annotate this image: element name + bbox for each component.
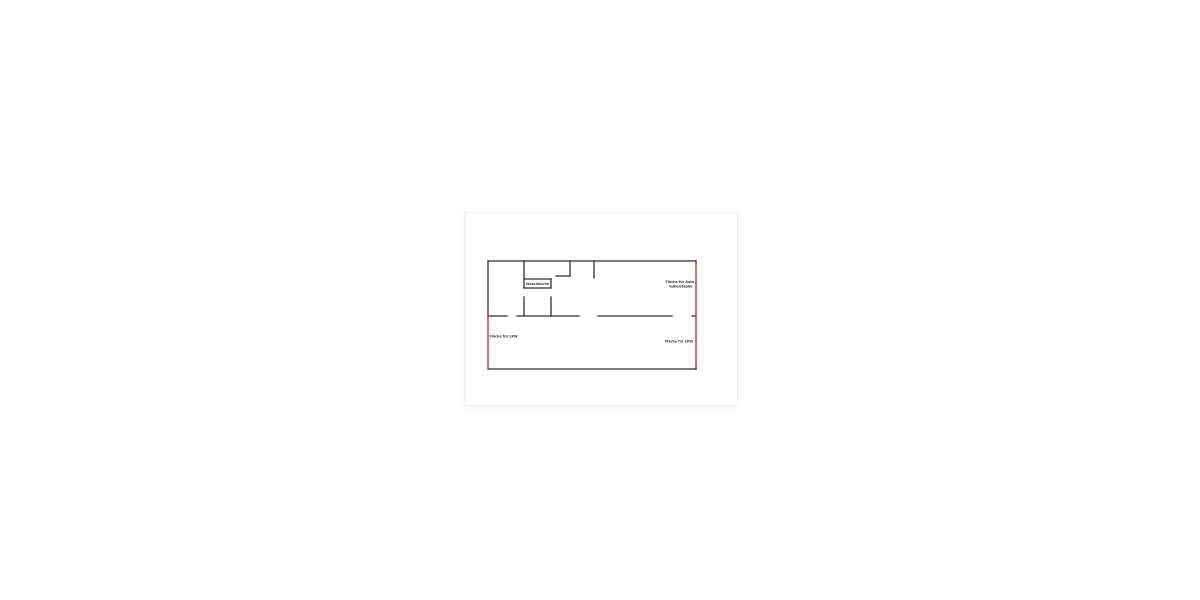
area-label-bottom-right: Fläche für LKW <box>665 340 694 344</box>
page-background: Waschküche Fläche für Auto / Gabelstaple… <box>0 0 1200 600</box>
small-room-label: Waschküche <box>526 282 550 286</box>
area-label-top-right-line2: Gabelstapler <box>669 285 693 289</box>
floor-plan-drawing: Waschküche Fläche für Auto / Gabelstaple… <box>487 260 697 370</box>
area-label-top-right-line1: Fläche für Auto / <box>666 280 697 284</box>
wall-lines <box>488 261 696 369</box>
area-label-bottom-left: Fläche für LKW <box>490 335 519 339</box>
floor-plan-card: Waschküche Fläche für Auto / Gabelstaple… <box>464 212 738 406</box>
